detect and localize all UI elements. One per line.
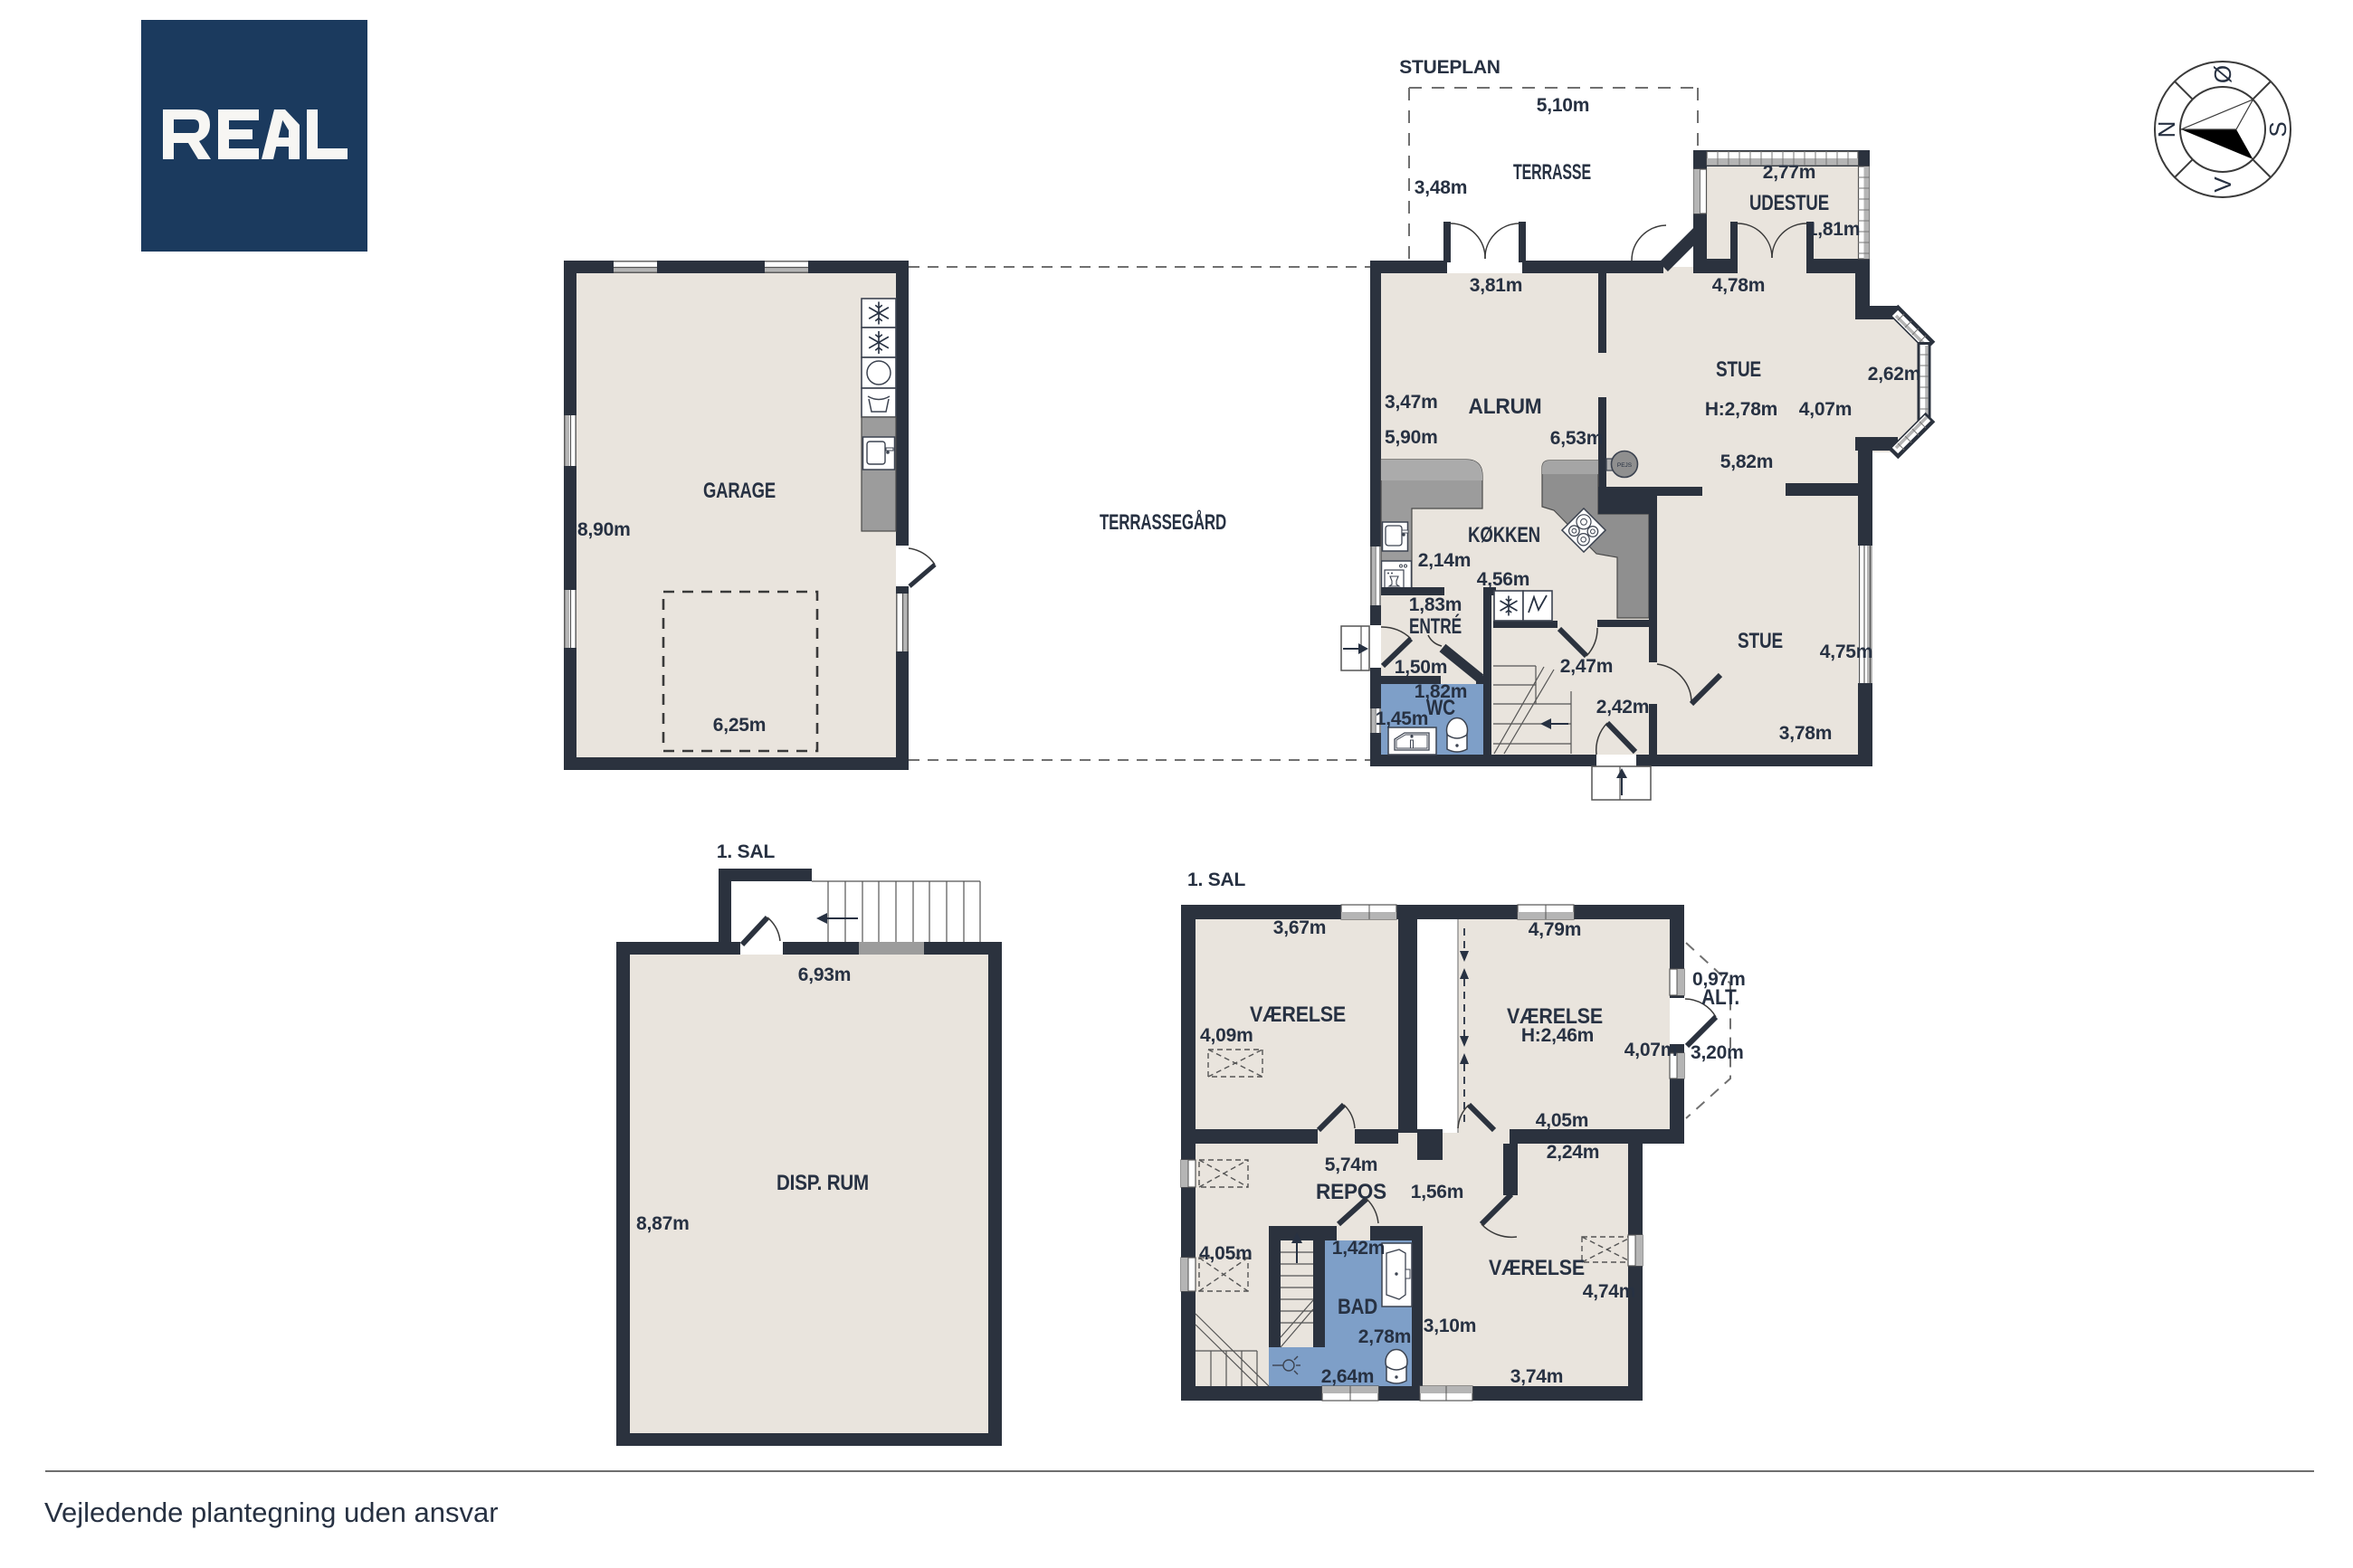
svg-text:4,07m: 4,07m xyxy=(1799,399,1853,420)
svg-text:4,05m: 4,05m xyxy=(1199,1243,1253,1264)
svg-text:5,10m: 5,10m xyxy=(1537,95,1590,116)
svg-text:GARAGE: GARAGE xyxy=(703,479,776,503)
svg-text:5,82m: 5,82m xyxy=(1720,451,1774,472)
svg-text:4,78m: 4,78m xyxy=(1712,275,1766,296)
svg-text:1. SAL: 1. SAL xyxy=(1187,870,1246,890)
svg-text:4,74m: 4,74m xyxy=(1583,1281,1636,1302)
svg-text:3,74m: 3,74m xyxy=(1510,1366,1564,1387)
svg-text:VÆRELSE: VÆRELSE xyxy=(1250,1003,1346,1027)
svg-text:S: S xyxy=(2264,121,2291,137)
svg-text:3,47m: 3,47m xyxy=(1385,392,1438,413)
svg-text:STUEPLAN: STUEPLAN xyxy=(1399,57,1500,78)
svg-text:5,90m: 5,90m xyxy=(1385,427,1438,448)
svg-text:BAD: BAD xyxy=(1338,1295,1377,1319)
svg-text:4,79m: 4,79m xyxy=(1529,919,1582,940)
svg-text:ALT.: ALT. xyxy=(1701,985,1739,1010)
svg-text:1,50m: 1,50m xyxy=(1395,657,1448,678)
svg-text:2,78m: 2,78m xyxy=(1358,1326,1412,1347)
svg-text:V: V xyxy=(2209,176,2236,193)
svg-text:PEJS: PEJS xyxy=(1617,462,1633,469)
svg-text:3,20m: 3,20m xyxy=(1691,1042,1744,1063)
svg-text:2,14m: 2,14m xyxy=(1418,550,1472,571)
svg-text:KØKKEN: KØKKEN xyxy=(1468,523,1540,547)
svg-text:1,81m: 1,81m xyxy=(1807,219,1861,240)
svg-text:8,87m: 8,87m xyxy=(636,1213,690,1234)
svg-text:1,42m: 1,42m xyxy=(1332,1238,1386,1259)
svg-text:3,67m: 3,67m xyxy=(1273,917,1327,938)
svg-text:H:2,78m: H:2,78m xyxy=(1705,399,1777,420)
svg-text:1,45m: 1,45m xyxy=(1376,708,1429,729)
svg-text:6,93m: 6,93m xyxy=(798,965,852,985)
svg-text:STUE: STUE xyxy=(1738,629,1783,653)
svg-text:VÆRELSE: VÆRELSE xyxy=(1489,1256,1585,1280)
svg-text:Vejledende plantegning uden an: Vejledende plantegning uden ansvar xyxy=(44,1497,499,1528)
svg-text:3,48m: 3,48m xyxy=(1415,177,1468,198)
svg-text:N: N xyxy=(2153,121,2180,138)
svg-text:STUE: STUE xyxy=(1716,357,1761,382)
svg-text:WC: WC xyxy=(1426,696,1455,720)
svg-text:8,90m: 8,90m xyxy=(577,519,631,540)
svg-text:1. SAL: 1. SAL xyxy=(717,841,776,862)
svg-text:ALRUM: ALRUM xyxy=(1469,394,1542,419)
svg-text:3,10m: 3,10m xyxy=(1424,1316,1477,1336)
svg-text:4,07m: 4,07m xyxy=(1624,1040,1678,1060)
svg-text:2,77m: 2,77m xyxy=(1763,162,1816,183)
svg-text:4,05m: 4,05m xyxy=(1536,1110,1589,1131)
svg-text:4,09m: 4,09m xyxy=(1200,1025,1253,1046)
svg-text:2,24m: 2,24m xyxy=(1547,1142,1600,1163)
svg-text:TERRASSE: TERRASSE xyxy=(1513,160,1591,185)
svg-text:1,83m: 1,83m xyxy=(1409,594,1462,615)
svg-text:4,56m: 4,56m xyxy=(1477,569,1530,590)
svg-text:UDESTUE: UDESTUE xyxy=(1749,191,1829,215)
svg-text:ENTRÉ: ENTRÉ xyxy=(1409,613,1462,639)
svg-text:6,25m: 6,25m xyxy=(713,715,767,736)
svg-text:H:2,46m: H:2,46m xyxy=(1521,1025,1594,1046)
svg-text:3,81m: 3,81m xyxy=(1470,275,1523,296)
svg-text:1,56m: 1,56m xyxy=(1411,1182,1464,1202)
svg-text:3,78m: 3,78m xyxy=(1779,723,1833,744)
svg-text:REPOS: REPOS xyxy=(1316,1180,1386,1204)
svg-text:Ø: Ø xyxy=(2209,65,2236,83)
svg-text:2,47m: 2,47m xyxy=(1560,656,1614,677)
svg-text:4,75m: 4,75m xyxy=(1820,641,1873,662)
svg-text:DISP. RUM: DISP. RUM xyxy=(776,1171,869,1195)
svg-text:2,62m: 2,62m xyxy=(1868,364,1921,385)
svg-text:2,64m: 2,64m xyxy=(1321,1366,1375,1387)
svg-text:5,74m: 5,74m xyxy=(1325,1155,1378,1175)
svg-text:6,53m: 6,53m xyxy=(1550,428,1604,449)
svg-text:2,42m: 2,42m xyxy=(1596,697,1650,717)
svg-text:TERRASSEGÅRD: TERRASSEGÅRD xyxy=(1100,509,1226,535)
